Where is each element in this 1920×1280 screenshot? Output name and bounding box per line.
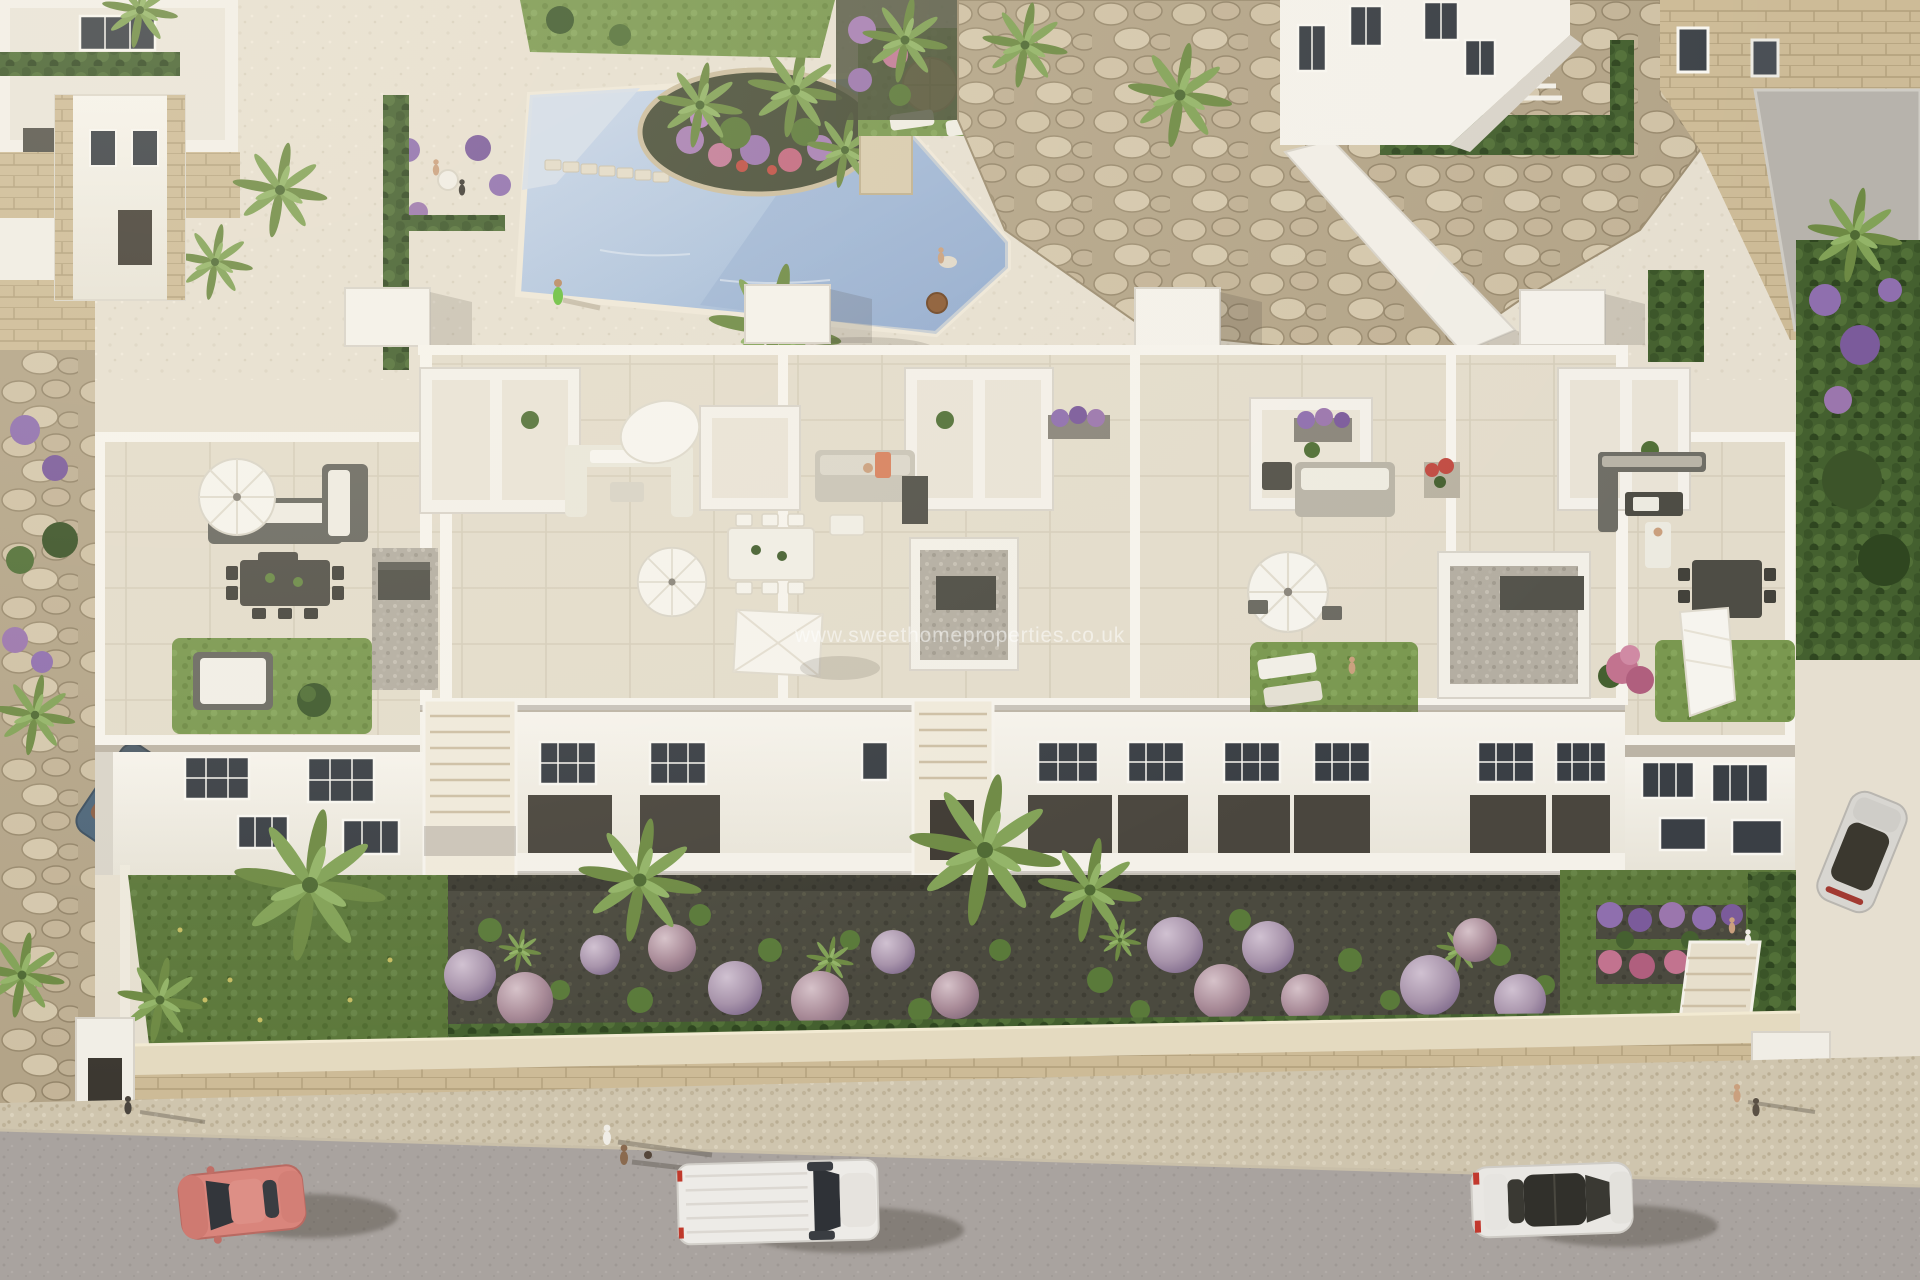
ac-unit <box>378 566 430 600</box>
cypress-hedge <box>1648 270 1704 362</box>
pedestrian <box>1729 917 1735 933</box>
daybed <box>193 652 273 710</box>
ac-unit <box>1500 576 1584 610</box>
roof-person <box>1349 657 1356 674</box>
gravel-patch <box>372 548 438 690</box>
outdoor-sofa <box>1295 462 1395 517</box>
cypress-hedge <box>1610 40 1634 155</box>
rooftop-terraces <box>95 345 1795 745</box>
stair-core <box>1438 552 1590 698</box>
pool-bin <box>927 293 947 313</box>
seated-person <box>863 463 873 473</box>
stair-core <box>910 538 1018 670</box>
outdoor-sofa <box>815 450 915 502</box>
lounging-person <box>1654 528 1663 537</box>
dining-set <box>728 514 814 594</box>
parapet-planter <box>1048 406 1110 439</box>
ac-unit <box>902 476 928 524</box>
white-parasol <box>1248 552 1328 632</box>
right-edge-hedge <box>1796 187 1920 660</box>
ac-unit <box>936 576 996 610</box>
white-parasol <box>199 459 275 535</box>
pedestrian <box>1745 929 1751 945</box>
aerial-render: www.sweethomeproperties.co.uk <box>0 0 1920 1280</box>
scene-render <box>0 0 1920 1280</box>
white-parasol <box>638 548 706 616</box>
parapet-planter <box>1294 408 1352 442</box>
swimmer <box>938 247 944 263</box>
silver-car <box>1812 787 1911 917</box>
shade-sail <box>1680 608 1735 716</box>
villa-left <box>55 95 185 300</box>
flower-pot <box>1424 458 1460 498</box>
